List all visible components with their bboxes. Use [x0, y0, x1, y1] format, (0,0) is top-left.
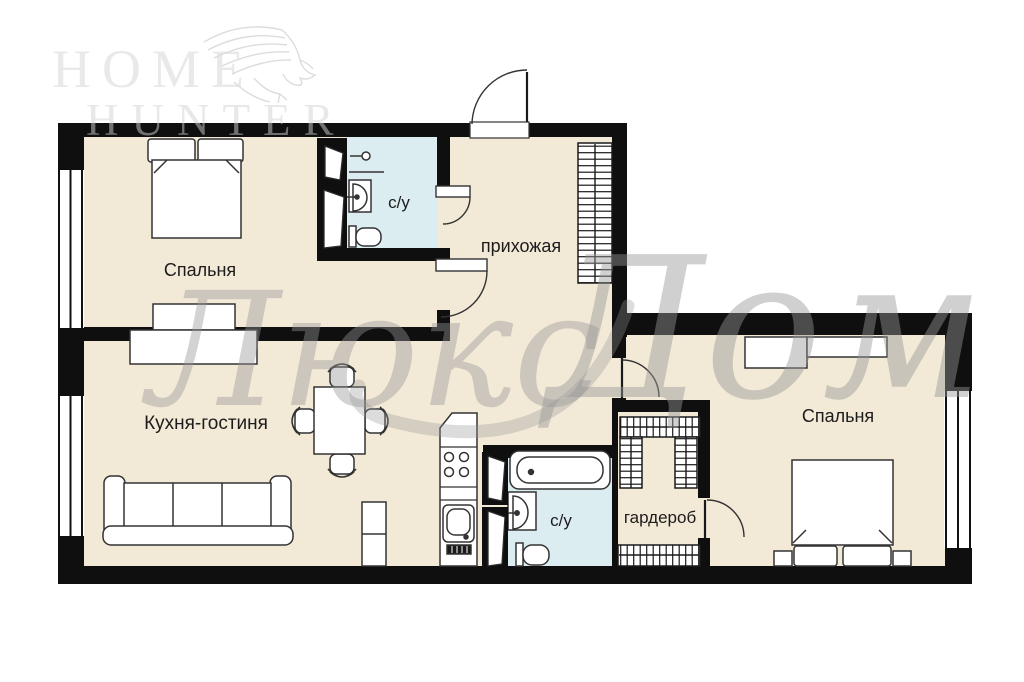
- sofa-cushions: [124, 483, 271, 530]
- pillow: [794, 546, 837, 566]
- wardrobe-rack-top: [620, 417, 700, 437]
- room-label-bedroom-left: Спальня: [164, 260, 236, 281]
- window-bedroom-left: [57, 170, 84, 328]
- bed-body: [792, 460, 893, 545]
- bathtub: [510, 451, 610, 489]
- double-bed-right: [792, 460, 893, 566]
- dresser-bedroom-right: [745, 337, 807, 368]
- open-door-leaf: [488, 456, 505, 501]
- nightstand: [774, 551, 792, 566]
- dining-table: [314, 387, 365, 454]
- pillow: [148, 139, 195, 162]
- sideboard-kitchen: [130, 330, 257, 364]
- sofa-base: [103, 526, 293, 545]
- dresser-bedroom-left: [153, 304, 235, 330]
- room-label-kitchen-living: Кухня-гостиня: [144, 413, 268, 435]
- room-label-wardrobe: гардероб: [624, 508, 696, 528]
- chair-top: [328, 364, 356, 387]
- toilet: [516, 543, 549, 566]
- nightstand: [893, 551, 911, 566]
- chair-right: [365, 407, 388, 435]
- sink: [506, 492, 536, 530]
- chair-left: [292, 407, 315, 435]
- wardrobe-rack-bottom: [618, 545, 700, 566]
- sink: [347, 180, 371, 212]
- chair-bottom: [328, 454, 356, 477]
- wardrobe-rack-left: [620, 437, 642, 488]
- sofa: [103, 476, 293, 545]
- window-bedroom-right: [944, 391, 972, 548]
- wardrobe-cabinet: [807, 337, 887, 357]
- kitchen-counter: [440, 413, 477, 566]
- open-door-leaf: [488, 511, 505, 566]
- floor-plan-canvas: Спальня Кухня-гостиня прихожая Спальня г…: [0, 0, 1024, 682]
- cabinet-small: [362, 502, 386, 566]
- open-door-leaf: [324, 190, 344, 248]
- pillow: [843, 546, 891, 566]
- toilet: [349, 226, 381, 247]
- entrance-door: [470, 70, 529, 138]
- wardrobe-rack-right: [675, 437, 697, 488]
- bed-body: [152, 160, 241, 238]
- floor-plan-drawing: [0, 0, 1024, 682]
- window-kitchen: [57, 396, 84, 536]
- double-bed-left: [148, 139, 243, 238]
- pillow: [198, 139, 243, 162]
- room-label-hallway: прихожая: [481, 236, 561, 257]
- room-label-bedroom-right: Спальня: [802, 406, 874, 427]
- hallway-closet-rack: [578, 143, 612, 283]
- room-label-bathroom-top: с/у: [388, 193, 410, 213]
- kitchen-sink: [443, 505, 474, 542]
- room-label-bathroom-bottom: с/у: [550, 511, 572, 531]
- drying-rack: [447, 545, 471, 554]
- towel-ring-icon: [362, 152, 370, 160]
